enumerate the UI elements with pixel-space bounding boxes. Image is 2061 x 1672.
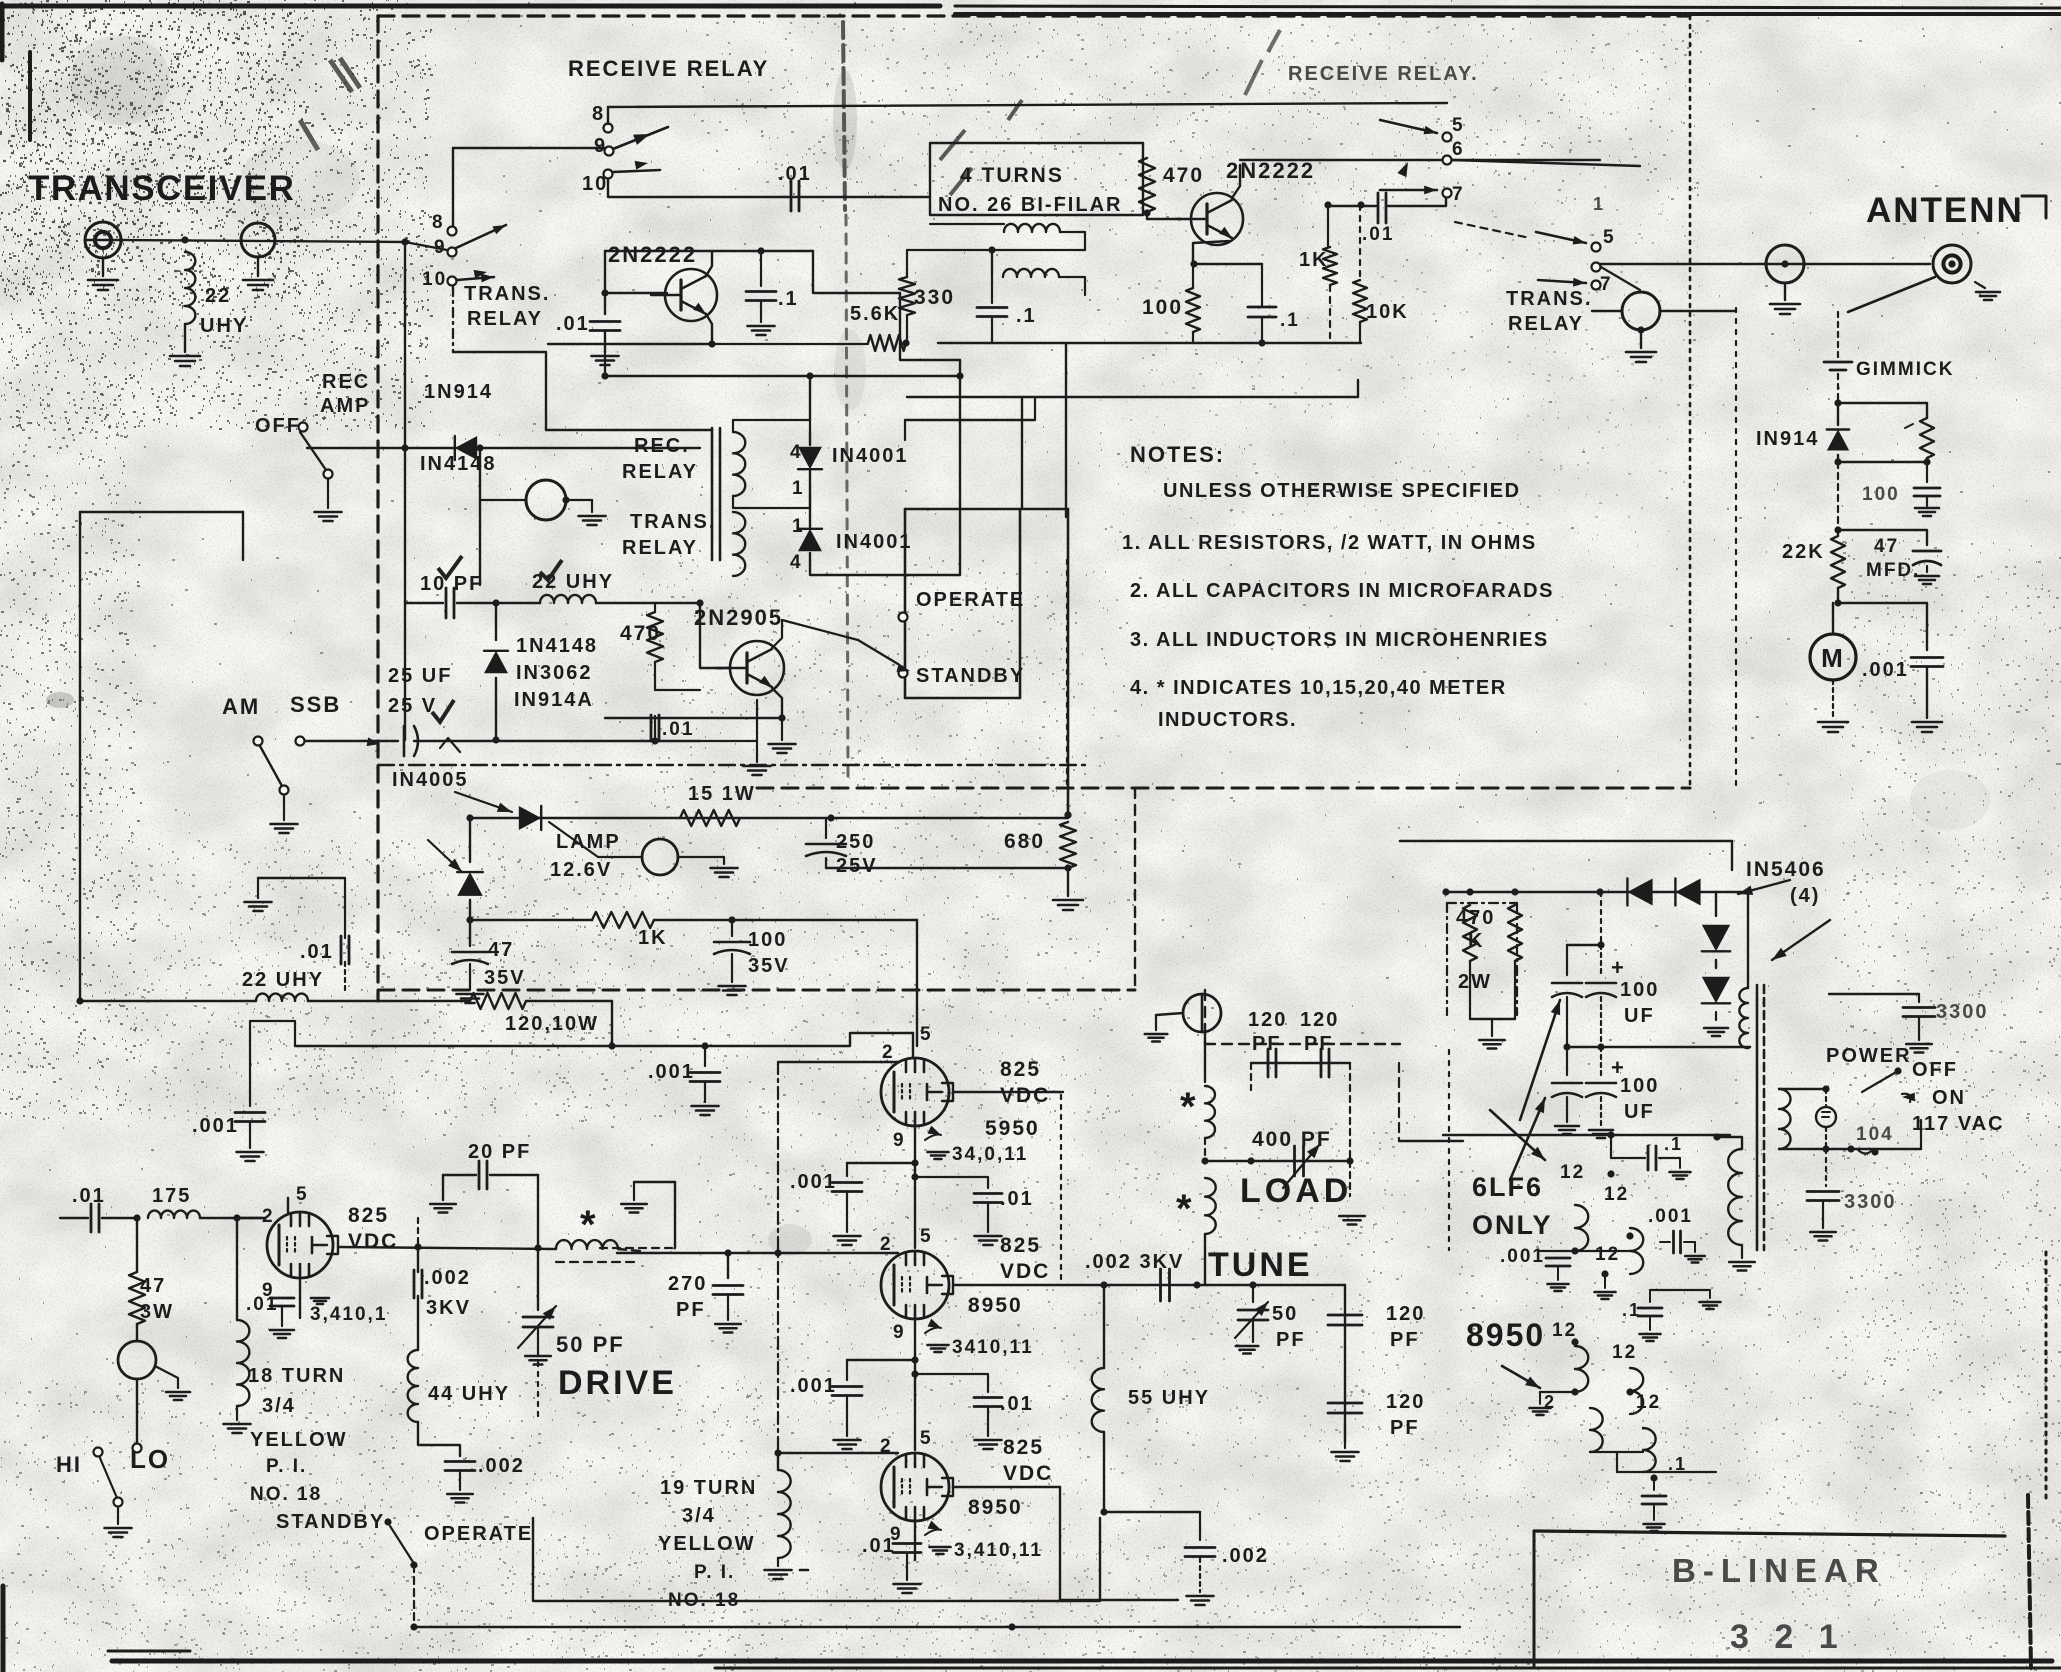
svg-text:825: 825 bbox=[1000, 1234, 1041, 1257]
svg-text:22K: 22K bbox=[1782, 541, 1825, 563]
svg-text:10 PF: 10 PF bbox=[420, 573, 483, 595]
svg-text:2W: 2W bbox=[1458, 971, 1492, 993]
svg-text:100: 100 bbox=[1862, 484, 1900, 505]
svg-text:+: + bbox=[1611, 955, 1626, 980]
svg-text:PF: PF bbox=[1276, 1329, 1306, 1351]
svg-text:.1: .1 bbox=[1622, 1300, 1641, 1320]
svg-text:34,0,11: 34,0,11 bbox=[952, 1144, 1028, 1165]
svg-text:2N2222: 2N2222 bbox=[608, 242, 697, 267]
svg-text:100: 100 bbox=[1620, 1075, 1659, 1097]
svg-text:.01: .01 bbox=[1362, 224, 1394, 245]
svg-text:UNLESS OTHERWISE SPECIFIED: UNLESS OTHERWISE SPECIFIED bbox=[1163, 480, 1521, 502]
svg-text:3 2 1: 3 2 1 bbox=[1730, 1618, 1846, 1656]
svg-text:NO. 26 BI-FILAR: NO. 26 BI-FILAR bbox=[938, 194, 1122, 216]
svg-text:680: 680 bbox=[1004, 830, 1045, 853]
svg-text:4: 4 bbox=[790, 442, 803, 463]
svg-text:RELAY: RELAY bbox=[1508, 313, 1584, 335]
svg-text:VDC: VDC bbox=[348, 1230, 398, 1253]
svg-text:12: 12 bbox=[1612, 1342, 1637, 1363]
svg-text:22: 22 bbox=[205, 285, 231, 307]
svg-text:5: 5 bbox=[296, 1184, 309, 1205]
svg-text:RECEIVE RELAY.: RECEIVE RELAY. bbox=[1288, 63, 1479, 85]
svg-text:25V: 25V bbox=[836, 855, 878, 877]
svg-text:P. I.: P. I. bbox=[266, 1456, 307, 1477]
svg-text:.002: .002 bbox=[478, 1455, 525, 1477]
svg-text:B-LINEAR: B-LINEAR bbox=[1672, 1552, 1886, 1589]
svg-text:3/4: 3/4 bbox=[682, 1505, 716, 1527]
svg-text:1: 1 bbox=[792, 516, 805, 537]
svg-text:IN3062: IN3062 bbox=[516, 662, 593, 684]
svg-text:12.6V: 12.6V bbox=[550, 859, 612, 881]
svg-text:825: 825 bbox=[348, 1204, 389, 1227]
svg-text:10K: 10K bbox=[1366, 301, 1409, 323]
svg-text:RELAY: RELAY bbox=[467, 308, 543, 330]
svg-text:RELAY: RELAY bbox=[622, 461, 698, 483]
svg-text:OFF: OFF bbox=[1912, 1059, 1958, 1081]
svg-text:UF: UF bbox=[1624, 1101, 1655, 1123]
svg-text:DRIVE: DRIVE bbox=[558, 1364, 677, 1402]
svg-text:ON: ON bbox=[1932, 1087, 1966, 1109]
svg-text:12: 12 bbox=[1595, 1244, 1620, 1265]
svg-text:1K: 1K bbox=[638, 927, 668, 949]
svg-text:.1: .1 bbox=[1280, 310, 1300, 331]
svg-text:.01: .01 bbox=[300, 941, 334, 963]
svg-text:12: 12 bbox=[1604, 1184, 1629, 1205]
svg-text:GIMMICK: GIMMICK bbox=[1856, 359, 1954, 380]
svg-text:IN4005: IN4005 bbox=[392, 769, 469, 791]
svg-text:PF: PF bbox=[676, 1299, 706, 1321]
svg-text:POWER: POWER bbox=[1826, 1045, 1912, 1067]
svg-text:5: 5 bbox=[920, 1024, 933, 1045]
svg-text:3410,11: 3410,11 bbox=[952, 1337, 1034, 1358]
svg-text:ANTENN: ANTENN bbox=[1866, 191, 2024, 230]
svg-text:VDC: VDC bbox=[1003, 1462, 1053, 1485]
svg-text:175: 175 bbox=[152, 1185, 191, 1207]
svg-text:OPERATE: OPERATE bbox=[424, 1523, 533, 1545]
svg-text:12: 12 bbox=[1552, 1320, 1577, 1341]
svg-text:35V: 35V bbox=[748, 955, 790, 977]
svg-text:8: 8 bbox=[432, 212, 445, 233]
svg-text:9: 9 bbox=[893, 1322, 906, 1343]
svg-text:NO. 18: NO. 18 bbox=[250, 1484, 322, 1505]
svg-text:IN4148: IN4148 bbox=[420, 453, 497, 475]
svg-text:OPERATE: OPERATE bbox=[916, 589, 1025, 611]
svg-text:.01: .01 bbox=[778, 163, 812, 185]
svg-text:IN914: IN914 bbox=[1756, 428, 1819, 450]
svg-text:TRANSCEIVER: TRANSCEIVER bbox=[28, 169, 295, 208]
svg-text:4 TURNS: 4 TURNS bbox=[960, 164, 1064, 187]
svg-text:12: 12 bbox=[1636, 1392, 1661, 1413]
svg-text:400 PF: 400 PF bbox=[1252, 1128, 1332, 1151]
svg-text:.001: .001 bbox=[1862, 659, 1909, 681]
svg-text:15 1W: 15 1W bbox=[688, 783, 756, 805]
svg-text:120: 120 bbox=[1300, 1009, 1339, 1031]
svg-text:104: 104 bbox=[1856, 1124, 1894, 1145]
svg-text:AMP: AMP bbox=[320, 395, 370, 417]
svg-text:5: 5 bbox=[920, 1428, 933, 1449]
svg-text:UF: UF bbox=[1624, 1005, 1655, 1027]
svg-text:4. * INDICATES 10,15,20,40 MET: 4. * INDICATES 10,15,20,40 METER bbox=[1130, 677, 1507, 699]
svg-text:25 UF: 25 UF bbox=[388, 665, 452, 687]
svg-text:.1: .1 bbox=[1668, 1454, 1687, 1474]
svg-text:IN4001: IN4001 bbox=[836, 531, 913, 553]
svg-text:825: 825 bbox=[1003, 1436, 1044, 1459]
svg-text:.001: .001 bbox=[648, 1061, 695, 1083]
svg-text:10: 10 bbox=[422, 269, 447, 290]
svg-text:3,410,11: 3,410,11 bbox=[954, 1540, 1043, 1561]
svg-text:19 TURN: 19 TURN bbox=[660, 1477, 757, 1499]
svg-text:1N914: 1N914 bbox=[424, 381, 493, 403]
svg-text:7: 7 bbox=[1600, 274, 1613, 295]
svg-text:LOAD: LOAD bbox=[1240, 1172, 1352, 1210]
svg-text:3300: 3300 bbox=[1936, 1001, 1989, 1023]
svg-text:25 V: 25 V bbox=[388, 695, 437, 717]
svg-text:3. ALL INDUCTORS IN MICROHENRI: 3. ALL INDUCTORS IN MICROHENRIES bbox=[1130, 629, 1549, 651]
svg-text:IN4001: IN4001 bbox=[832, 445, 909, 467]
svg-text:TRANS.: TRANS. bbox=[464, 283, 550, 305]
svg-text:RELAY: RELAY bbox=[622, 537, 698, 559]
svg-text:47: 47 bbox=[1874, 536, 1899, 557]
svg-text:8950: 8950 bbox=[968, 1294, 1023, 1317]
svg-text:20 PF: 20 PF bbox=[468, 1141, 531, 1163]
svg-text:.1: .1 bbox=[1664, 1134, 1683, 1154]
svg-text:50 PF: 50 PF bbox=[556, 1332, 625, 1357]
svg-text:330: 330 bbox=[914, 286, 955, 309]
svg-text:.002: .002 bbox=[424, 1267, 471, 1289]
svg-text:120: 120 bbox=[1248, 1009, 1287, 1031]
svg-text:.1: .1 bbox=[778, 288, 799, 310]
svg-text:100: 100 bbox=[748, 929, 787, 951]
svg-text:AM: AM bbox=[222, 694, 260, 719]
svg-text:4: 4 bbox=[790, 552, 803, 573]
svg-text:ONLY: ONLY bbox=[1472, 1210, 1553, 1240]
svg-text:470: 470 bbox=[1163, 164, 1204, 187]
svg-text:8: 8 bbox=[592, 103, 605, 125]
svg-text:RECEIVE RELAY: RECEIVE RELAY bbox=[568, 56, 769, 81]
svg-text:12: 12 bbox=[1560, 1162, 1585, 1183]
svg-text:3/4: 3/4 bbox=[262, 1395, 296, 1417]
svg-text:5950: 5950 bbox=[985, 1117, 1040, 1140]
svg-text:TUNE: TUNE bbox=[1208, 1246, 1313, 1284]
svg-text:.001: .001 bbox=[1648, 1206, 1693, 1227]
svg-text:.001: .001 bbox=[192, 1115, 239, 1137]
svg-text:TRANS.: TRANS. bbox=[630, 511, 716, 533]
svg-text:YELLOW: YELLOW bbox=[250, 1429, 348, 1451]
svg-text:470: 470 bbox=[1456, 907, 1495, 929]
svg-text:7: 7 bbox=[1452, 184, 1465, 205]
svg-text:.1: .1 bbox=[1016, 305, 1037, 327]
svg-text:50: 50 bbox=[1272, 1303, 1298, 1325]
svg-text:1N4148: 1N4148 bbox=[516, 635, 598, 657]
svg-text:120: 120 bbox=[1386, 1303, 1425, 1325]
svg-text:2: 2 bbox=[882, 1042, 895, 1063]
svg-text:22 UHY: 22 UHY bbox=[532, 571, 614, 593]
svg-text:REC: REC bbox=[322, 371, 370, 393]
svg-text:NOTES:: NOTES: bbox=[1130, 442, 1225, 467]
svg-text:250: 250 bbox=[836, 831, 875, 853]
svg-text:VDC: VDC bbox=[1000, 1260, 1050, 1283]
svg-text:*: * bbox=[1176, 1187, 1194, 1231]
svg-text:OFF: OFF bbox=[255, 415, 301, 437]
svg-text:3300: 3300 bbox=[1844, 1191, 1897, 1213]
svg-text:1: 1 bbox=[1593, 194, 1605, 214]
svg-text:.001: .001 bbox=[790, 1171, 837, 1193]
svg-text:18 TURN: 18 TURN bbox=[248, 1365, 345, 1387]
svg-text:TRANS.: TRANS. bbox=[1506, 288, 1592, 310]
svg-text:YELLOW: YELLOW bbox=[658, 1533, 756, 1555]
svg-text:SSB: SSB bbox=[290, 692, 341, 717]
svg-text:K: K bbox=[1468, 930, 1484, 952]
svg-text:270: 270 bbox=[668, 1273, 707, 1295]
svg-text:.01: .01 bbox=[72, 1185, 106, 1207]
svg-text:HI: HI bbox=[56, 1452, 82, 1477]
svg-text:MFD.: MFD. bbox=[1866, 560, 1920, 581]
svg-text:.002: .002 bbox=[1222, 1545, 1269, 1567]
svg-text:9: 9 bbox=[893, 1130, 906, 1151]
svg-text:47: 47 bbox=[488, 939, 514, 961]
svg-text:2. ALL CAPACITORS IN MICROFARA: 2. ALL CAPACITORS IN MICROFARADS bbox=[1130, 580, 1554, 602]
svg-text:8950: 8950 bbox=[1466, 1317, 1545, 1353]
svg-text:.001: .001 bbox=[1500, 1246, 1545, 1267]
svg-text:55 UHY: 55 UHY bbox=[1128, 1387, 1210, 1409]
svg-text:2: 2 bbox=[262, 1206, 275, 1227]
svg-text:.01: .01 bbox=[862, 1535, 896, 1557]
svg-text:STANDBY: STANDBY bbox=[276, 1511, 385, 1533]
svg-text:5.6K: 5.6K bbox=[850, 303, 900, 325]
svg-text:IN914A: IN914A bbox=[514, 689, 594, 711]
svg-text:3KV: 3KV bbox=[426, 1297, 471, 1319]
svg-text:PF: PF bbox=[1390, 1417, 1420, 1439]
svg-text:3,410,1: 3,410,1 bbox=[310, 1304, 387, 1325]
svg-text:(4): (4) bbox=[1790, 885, 1820, 907]
svg-text:5: 5 bbox=[1603, 227, 1616, 248]
svg-text:2N2905: 2N2905 bbox=[694, 605, 783, 630]
svg-text:8950: 8950 bbox=[968, 1496, 1023, 1519]
svg-text:P. I.: P. I. bbox=[694, 1562, 735, 1583]
svg-text:.01: .01 bbox=[1000, 1188, 1034, 1210]
svg-text:120: 120 bbox=[1386, 1391, 1425, 1413]
svg-text:INDUCTORS.: INDUCTORS. bbox=[1158, 709, 1297, 731]
svg-text:.001: .001 bbox=[790, 1375, 837, 1397]
svg-text:1: 1 bbox=[792, 478, 805, 499]
svg-text:.01: .01 bbox=[662, 719, 694, 740]
svg-text:5: 5 bbox=[920, 1226, 933, 1247]
svg-text:.01: .01 bbox=[556, 313, 590, 335]
svg-text:VDC: VDC bbox=[1000, 1084, 1050, 1107]
svg-text:6LF6: 6LF6 bbox=[1472, 1172, 1543, 1202]
svg-text:UHY: UHY bbox=[200, 315, 248, 337]
svg-text:1. ALL RESISTORS, /2 WATT, IN: 1. ALL RESISTORS, /2 WATT, IN OHMS bbox=[1122, 532, 1537, 554]
svg-text:*: * bbox=[1180, 1085, 1198, 1129]
svg-text:5: 5 bbox=[1452, 115, 1465, 136]
svg-text:35V: 35V bbox=[484, 967, 526, 989]
svg-text:825: 825 bbox=[1000, 1058, 1041, 1081]
svg-text:STANDBY: STANDBY bbox=[916, 665, 1025, 687]
svg-text:REC.: REC. bbox=[634, 435, 690, 457]
svg-text:IN5406: IN5406 bbox=[1746, 858, 1826, 881]
svg-text:M: M bbox=[1821, 643, 1845, 673]
svg-text:100: 100 bbox=[1142, 296, 1183, 319]
svg-text:PF: PF bbox=[1390, 1329, 1420, 1351]
svg-text:22 UHY: 22 UHY bbox=[242, 969, 324, 991]
svg-text:100: 100 bbox=[1620, 979, 1659, 1001]
svg-text:117 VAC: 117 VAC bbox=[1912, 1113, 2005, 1135]
svg-text:44 UHY: 44 UHY bbox=[428, 1383, 510, 1405]
svg-text:6: 6 bbox=[1452, 139, 1465, 160]
svg-text:.01: .01 bbox=[1000, 1393, 1034, 1415]
svg-text:120,10W: 120,10W bbox=[505, 1013, 599, 1035]
